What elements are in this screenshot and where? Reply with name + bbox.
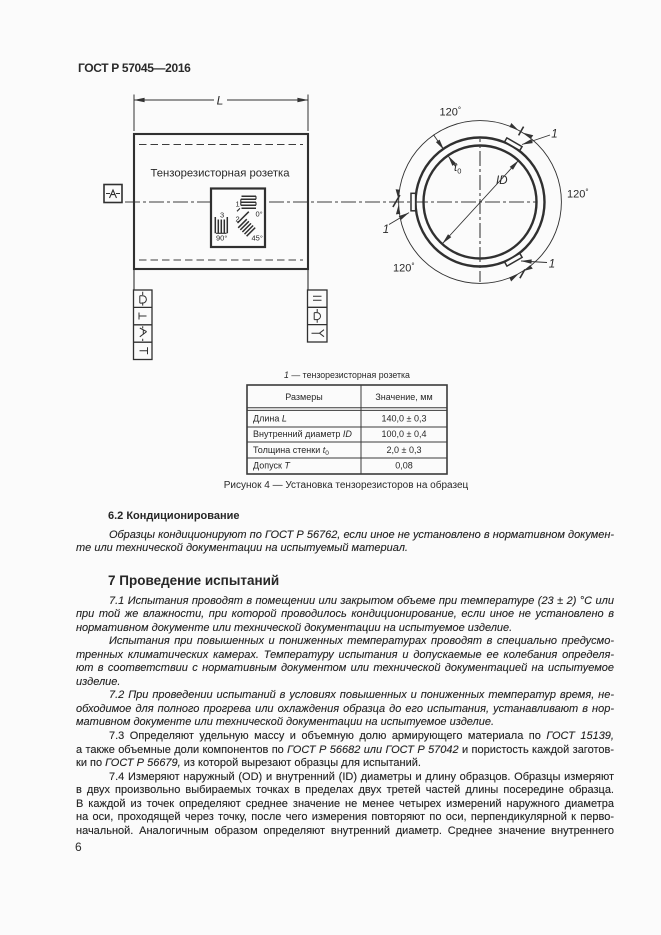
svg-text:140,0 ± 0,3: 140,0 ± 0,3 xyxy=(382,414,427,424)
svg-text:Допуск Т: Допуск Т xyxy=(253,461,291,471)
svg-text:45°: 45° xyxy=(252,234,263,243)
svg-text:L: L xyxy=(217,94,224,108)
svg-text:Длина L: Длина L xyxy=(253,414,287,424)
svg-text:Рисунок 4 — Установка тензорез: Рисунок 4 — Установка тензорезисторов на… xyxy=(224,479,469,491)
svg-text:Размеры: Размеры xyxy=(285,392,322,402)
svg-text:3: 3 xyxy=(220,211,224,220)
svg-text:120°: 120° xyxy=(440,106,462,119)
svg-text:120°: 120° xyxy=(393,262,415,275)
svg-text:0°: 0° xyxy=(256,210,263,219)
svg-text:Значение, мм: Значение, мм xyxy=(375,392,432,402)
svg-text:90°: 90° xyxy=(216,234,227,243)
svg-text:1: 1 xyxy=(383,224,389,236)
svg-text:2,0 ± 0,3: 2,0 ± 0,3 xyxy=(387,445,422,455)
svg-text:2: 2 xyxy=(236,215,240,224)
svg-text:t0: t0 xyxy=(454,162,461,176)
svg-text:100,0 ± 0,4: 100,0 ± 0,4 xyxy=(382,429,427,439)
svg-text:1 — тензорезисторная розетка: 1 — тензорезисторная розетка xyxy=(284,370,410,380)
svg-text:1: 1 xyxy=(236,200,240,209)
svg-text:Тензорезисторная розетка: Тензорезисторная розетка xyxy=(150,168,290,180)
svg-text:ID: ID xyxy=(496,175,508,187)
svg-text:1: 1 xyxy=(549,259,555,271)
svg-text:Внутренний диаметр ID: Внутренний диаметр ID xyxy=(253,429,352,439)
svg-text:0,08: 0,08 xyxy=(395,461,413,471)
svg-text:1: 1 xyxy=(551,129,557,141)
svg-text:120°: 120° xyxy=(567,188,589,201)
svg-text:Толщина стенки t0: Толщина стенки t0 xyxy=(253,445,329,457)
